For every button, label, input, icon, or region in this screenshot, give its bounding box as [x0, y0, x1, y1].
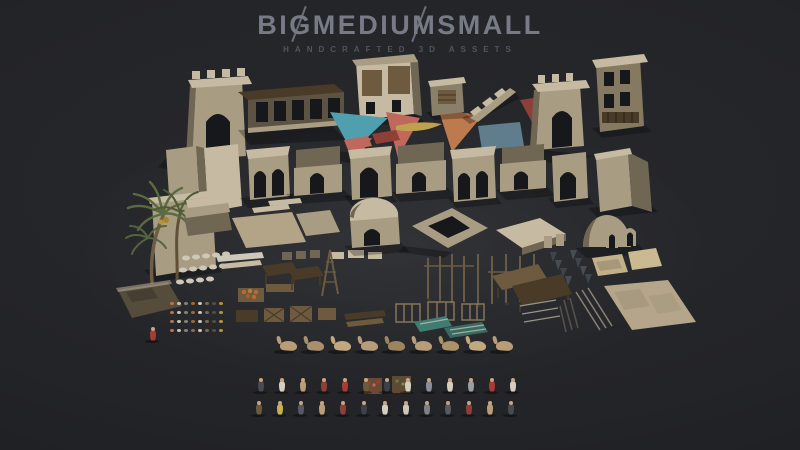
wood-sheds [492, 264, 572, 312]
dot-sprite [205, 320, 209, 323]
dot-sprite [170, 329, 174, 332]
person-sprite [298, 404, 304, 415]
arch-wall-2 [344, 146, 398, 206]
brand-tagline: HANDCRAFTED 3D ASSETS [0, 45, 800, 54]
person-sprite [340, 404, 346, 415]
person-sprite [489, 381, 495, 392]
spear-rack [576, 288, 612, 330]
dot-sprite [198, 329, 202, 332]
person-sprite [277, 404, 283, 415]
dot-sprite [205, 329, 209, 332]
person-sprite [384, 381, 390, 392]
person-sprite [445, 404, 451, 415]
dot-sprite [191, 311, 195, 314]
stick-bundle [560, 298, 578, 332]
floor-platform [496, 218, 566, 255]
person-sprite [361, 404, 367, 415]
person-sprite [424, 404, 430, 415]
arch-wall-4 [548, 152, 594, 208]
person-sprite [321, 381, 327, 392]
dot-sprite [177, 311, 181, 314]
slab-stack [184, 195, 232, 236]
courtyard-ring [398, 208, 488, 258]
dot-sprite [184, 329, 188, 332]
dot-sprite [219, 302, 223, 305]
camel-sprite [388, 341, 405, 351]
person-sprite [279, 381, 285, 392]
dot-sprite [219, 311, 223, 314]
dot-sprite [170, 311, 174, 314]
dot-sprite [177, 320, 181, 323]
person-sprite [508, 404, 514, 415]
dot-sprite [184, 311, 188, 314]
dot-sprite [191, 302, 195, 305]
dot-sprite [212, 311, 216, 314]
window-box-house [426, 77, 470, 120]
camel-sprite [469, 341, 486, 351]
dot-sprite [184, 320, 188, 323]
dot-sprite [198, 302, 202, 305]
mashrabiya-house [592, 54, 652, 138]
dot-sprite [219, 320, 223, 323]
dot-sprite [205, 311, 209, 314]
person-sprite [466, 404, 472, 415]
asset-collage [0, 0, 800, 450]
dot-sprite [212, 320, 216, 323]
camel-sprite [334, 341, 351, 351]
person-sprite [510, 381, 516, 392]
dot-sprite [184, 302, 188, 305]
arch-wall-3 [448, 146, 502, 208]
person-sprite [300, 381, 306, 392]
dot-sprite [191, 329, 195, 332]
person-sprite [487, 404, 493, 415]
plank-stack [344, 310, 386, 327]
person-sprite [256, 404, 262, 415]
dot-sprite [205, 302, 209, 305]
dot-sprite [198, 320, 202, 323]
fruit-cart [238, 288, 264, 302]
crates-row [236, 306, 336, 322]
person-sprite [258, 381, 264, 392]
stone-floor-tile [604, 280, 696, 330]
camel-sprite [415, 341, 432, 351]
person-sprite [403, 404, 409, 415]
trim-blocks [282, 250, 320, 260]
person-sprite [150, 330, 156, 341]
person-sprite [382, 404, 388, 415]
brand-header: BIGMEDIUMSMALL HANDCRAFTED 3D ASSETS [0, 10, 800, 54]
room-module-2 [392, 142, 458, 202]
stair-piece [462, 88, 520, 124]
brand-logo: BIGMEDIUMSMALL [257, 10, 542, 41]
camel-sprite [442, 341, 459, 351]
camel-sprite [361, 341, 378, 351]
brand-logo-text: BIGMEDIUMSMALL [257, 10, 542, 40]
dot-sprite [219, 329, 223, 332]
dot-sprite [212, 302, 216, 305]
dot-sprite [177, 329, 181, 332]
person-sprite [363, 381, 369, 392]
person-sprite [468, 381, 474, 392]
person-sprite [405, 381, 411, 392]
dot-sprite [212, 329, 216, 332]
corner-wall-panels [588, 148, 658, 218]
dot-sprite [177, 302, 181, 305]
person-sprite [342, 381, 348, 392]
arch-wall-1 [240, 146, 298, 208]
camel-sprite [496, 341, 513, 351]
balcony-building [238, 84, 346, 145]
person-sprite [319, 404, 325, 415]
market-stalls [238, 262, 324, 302]
dot-sprite [191, 320, 195, 323]
dot-sprite [198, 311, 202, 314]
camel-sprite [280, 341, 297, 351]
person-sprite [426, 381, 432, 392]
dot-sprite [170, 302, 174, 305]
camel-sprite [307, 341, 324, 351]
asset-showcase-render: BIGMEDIUMSMALL HANDCRAFTED 3D ASSETS [0, 0, 800, 450]
small-dome-building [344, 198, 410, 256]
person-sprite [447, 381, 453, 392]
dot-sprite [170, 320, 174, 323]
